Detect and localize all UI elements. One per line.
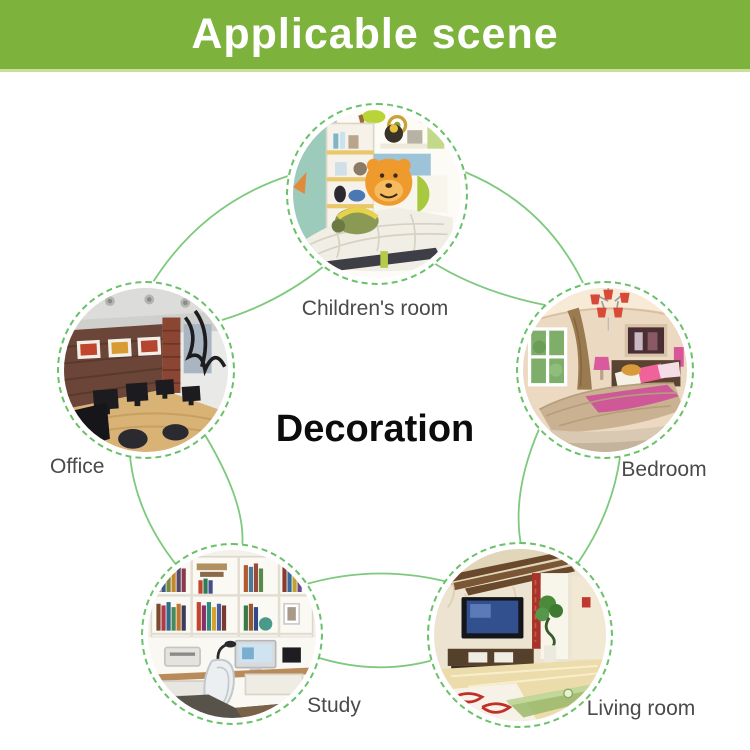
study-photo: [148, 550, 316, 718]
scene-circle-living-room: [427, 542, 613, 728]
center-title: Decoration: [276, 408, 474, 451]
arc-living-study-inner: [303, 573, 452, 585]
label-bedroom: Bedroom: [621, 458, 706, 482]
arc-bedroom-living-inner: [519, 427, 540, 550]
arc-study-office-outer: [130, 456, 178, 567]
label-childrens-room: Children's room: [302, 297, 448, 321]
label-office: Office: [50, 455, 104, 479]
arc-office-children-outer: [150, 176, 288, 287]
arc-living-study-outer: [310, 655, 440, 667]
childrens-room-photo: [293, 110, 461, 278]
scene-circle-childrens-room: [286, 103, 468, 285]
bedroom-photo: [523, 288, 687, 452]
label-living-room: Living room: [587, 697, 696, 721]
office-photo: [64, 288, 228, 452]
scene-circle-office: [57, 281, 235, 459]
arc-children-bedroom-inner: [432, 262, 545, 305]
arc-children-bedroom-outer: [465, 172, 583, 283]
living-room-photo: [434, 549, 606, 721]
label-study: Study: [307, 694, 361, 718]
arc-bedroom-living-outer: [575, 457, 620, 567]
scene-circle-bedroom: [516, 281, 694, 459]
scene-circle-study: [141, 543, 323, 725]
arc-study-office-inner: [205, 435, 243, 548]
